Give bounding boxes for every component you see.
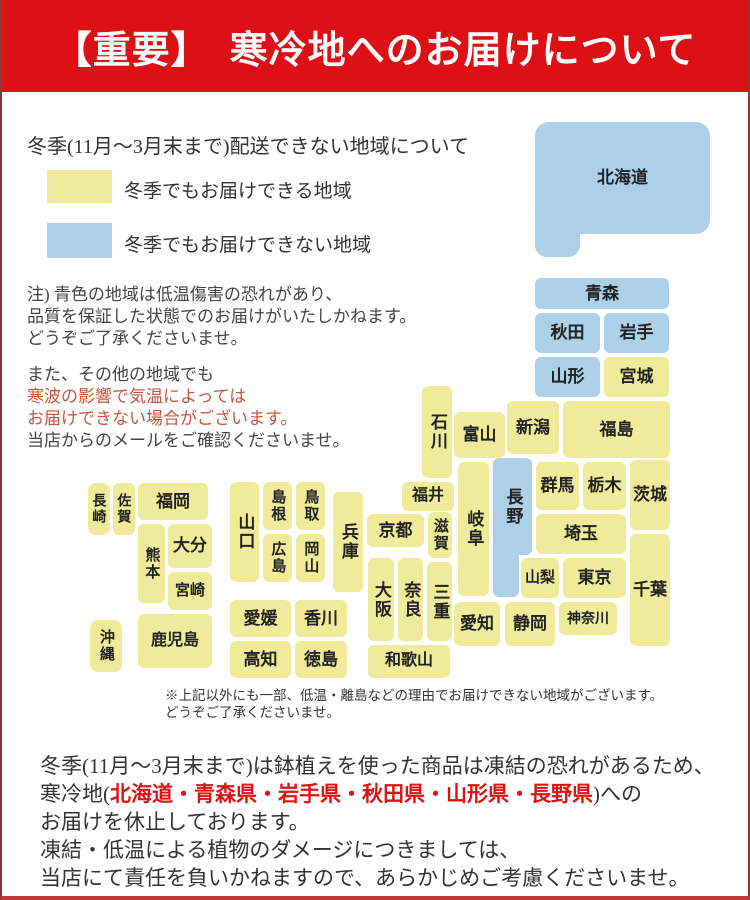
prefecture-label: 福島 — [600, 421, 634, 439]
prefecture-niigata: 新潟 — [507, 401, 559, 454]
prefecture-fukui: 福井 — [402, 482, 454, 511]
prefecture-label: 香川 — [304, 610, 338, 628]
prefecture-aichi: 愛知 — [454, 602, 500, 646]
prefecture-ibaraki: 茨城 — [630, 460, 670, 530]
prefecture-label: 山梨 — [525, 570, 555, 586]
prefecture-label: 三重 — [431, 583, 449, 621]
prefecture-label: 岐阜 — [465, 510, 483, 548]
prefecture-label: 新潟 — [516, 419, 550, 437]
prefecture-label: 福岡 — [156, 493, 190, 511]
prefecture-label: 岡山 — [303, 541, 319, 575]
prefecture-label: 愛知 — [460, 615, 494, 633]
footnote-line: ※上記以外にも一部、低温・離島などの理由でお届けできない地域がございます。 — [165, 687, 663, 704]
prefecture-shiga: 滋賀 — [428, 512, 452, 558]
prefecture-label: 山口 — [236, 513, 254, 551]
prefecture-label: 高知 — [244, 651, 278, 669]
prefecture-okayama: 岡山 — [296, 534, 325, 582]
prefecture-label: 愛媛 — [244, 610, 278, 628]
notice-page: 【重要】 寒冷地へのお届けについて 冬季(11月～3月末まで)配送できない地域に… — [0, 0, 750, 900]
prefecture-hokkaido-tab — [535, 200, 580, 257]
prefecture-label: 滋賀 — [432, 518, 448, 552]
prefecture-tochigi: 栃木 — [583, 462, 626, 510]
prefecture-nagasaki: 長崎 — [88, 483, 110, 535]
footer-line: 当店にて責任を負いかねますので、あらかじめご考慮くださいませ。 — [40, 864, 715, 892]
prefecture-label: 宮城 — [620, 368, 654, 386]
prefecture-wakayama: 和歌山 — [368, 645, 450, 678]
prefecture-oita: 大分 — [168, 524, 212, 568]
prefecture-hyogo: 兵庫 — [333, 492, 363, 592]
prefecture-kanagawa: 神奈川 — [559, 602, 617, 635]
prefecture-label: 長崎 — [92, 493, 107, 525]
prefecture-shimane: 島根 — [263, 482, 292, 530]
prefecture-iwate: 岩手 — [604, 313, 669, 353]
prefecture-label: 兵庫 — [339, 523, 357, 561]
prefecture-aomori: 青森 — [535, 278, 669, 309]
prefecture-label: 神奈川 — [567, 611, 609, 626]
prefecture-akita: 秋田 — [535, 313, 600, 353]
prefecture-hiroshima: 広島 — [263, 534, 292, 582]
prefecture-nara: 奈良 — [398, 558, 423, 641]
footer-line: 凍結・低温による植物のダメージにつきましては、 — [40, 836, 715, 864]
cold-region-list: 北海道・青森県・岩手県・秋田県・山形県・長野県 — [110, 782, 593, 806]
prefecture-fukuoka: 福岡 — [138, 483, 208, 520]
prefecture-label: 群馬 — [541, 477, 575, 495]
prefecture-label: 福井 — [412, 488, 444, 505]
prefecture-miyazaki: 宮崎 — [168, 572, 212, 610]
prefecture-label: 秋田 — [551, 324, 585, 342]
prefecture-tottori: 鳥取 — [296, 482, 325, 530]
prefecture-tokushima: 徳島 — [295, 641, 347, 678]
prefecture-label: 鳥取 — [303, 489, 319, 523]
prefecture-label: 岩手 — [620, 324, 654, 342]
footer-line: お届けを休止しております。 — [40, 808, 715, 836]
prefecture-label: 広島 — [270, 541, 286, 575]
prefecture-label: 熊本 — [144, 547, 160, 581]
prefecture-label: 静岡 — [513, 615, 547, 633]
prefecture-label: 大阪 — [372, 581, 390, 619]
prefecture-label: 島根 — [270, 489, 286, 523]
prefecture-saitama: 埼玉 — [536, 514, 626, 554]
footer-notice: 冬季(11月～3月末まで)は鉢植えを使った商品は凍結の恐れがあるため、 寒冷地(… — [40, 752, 715, 892]
footer-line: 冬季(11月～3月末まで)は鉢植えを使った商品は凍結の恐れがあるため、 — [40, 752, 715, 780]
prefecture-label: 大分 — [173, 537, 207, 555]
prefecture-label: 栃木 — [588, 477, 622, 495]
prefecture-yamanashi: 山梨 — [521, 558, 559, 598]
prefecture-label: 東京 — [578, 569, 612, 587]
prefecture-fukushima: 福島 — [563, 401, 670, 458]
footer-text: )への — [593, 782, 642, 806]
prefecture-label: 長野 — [504, 488, 522, 526]
prefecture-label: 埼玉 — [564, 525, 598, 543]
prefecture-ehime: 愛媛 — [230, 600, 291, 637]
prefecture-label: 和歌山 — [385, 653, 433, 670]
prefecture-kumamoto: 熊本 — [138, 524, 165, 603]
prefecture-yamaguchi: 山口 — [230, 482, 259, 582]
footer-text: 寒冷地( — [40, 782, 110, 806]
prefecture-label: 京都 — [379, 522, 413, 540]
footnote-line: どうぞご了承くださいませ。 — [165, 704, 663, 721]
prefecture-label: 徳島 — [304, 651, 338, 669]
prefecture-ishikawa: 石川 — [422, 386, 452, 478]
prefecture-okinawa: 沖縄 — [90, 620, 122, 672]
prefecture-yamagata: 山形 — [535, 357, 600, 397]
prefecture-label: 千葉 — [633, 581, 667, 599]
prefecture-gunma: 群馬 — [536, 462, 579, 510]
prefecture-label: 奈良 — [402, 581, 420, 619]
prefecture-mie: 三重 — [427, 562, 452, 641]
prefecture-shizuoka: 静岡 — [505, 602, 555, 646]
prefecture-label: 石川 — [428, 413, 446, 451]
prefecture-osaka: 大阪 — [368, 558, 394, 641]
prefecture-miyagi: 宮城 — [604, 357, 669, 397]
prefecture-kagawa: 香川 — [295, 600, 347, 637]
prefecture-label: 茨城 — [633, 486, 667, 504]
prefecture-kyoto: 京都 — [367, 514, 424, 547]
prefecture-nagano-tab — [493, 530, 519, 597]
footer-line: 寒冷地(北海道・青森県・岩手県・秋田県・山形県・長野県)への — [40, 780, 715, 808]
prefecture-gifu: 岐阜 — [458, 462, 489, 596]
prefecture-label: 鹿児島 — [151, 633, 199, 650]
prefecture-kagoshima: 鹿児島 — [138, 614, 212, 668]
prefecture-label: 青森 — [585, 285, 619, 303]
prefecture-saga: 佐賀 — [113, 483, 135, 535]
prefecture-chiba: 千葉 — [630, 534, 670, 646]
prefecture-label: 北海道 — [597, 169, 648, 187]
prefecture-label: 山形 — [551, 368, 585, 386]
prefecture-toyama: 富山 — [454, 412, 505, 458]
prefecture-kochi: 高知 — [230, 641, 291, 678]
prefecture-label: 宮崎 — [175, 583, 205, 599]
prefecture-label: 富山 — [463, 426, 497, 444]
prefecture-label: 佐賀 — [117, 493, 132, 525]
prefecture-label: 沖縄 — [98, 629, 114, 663]
map-footnote: ※上記以外にも一部、低温・離島などの理由でお届けできない地域がございます。 どう… — [165, 687, 663, 721]
prefecture-tokyo: 東京 — [563, 558, 626, 598]
